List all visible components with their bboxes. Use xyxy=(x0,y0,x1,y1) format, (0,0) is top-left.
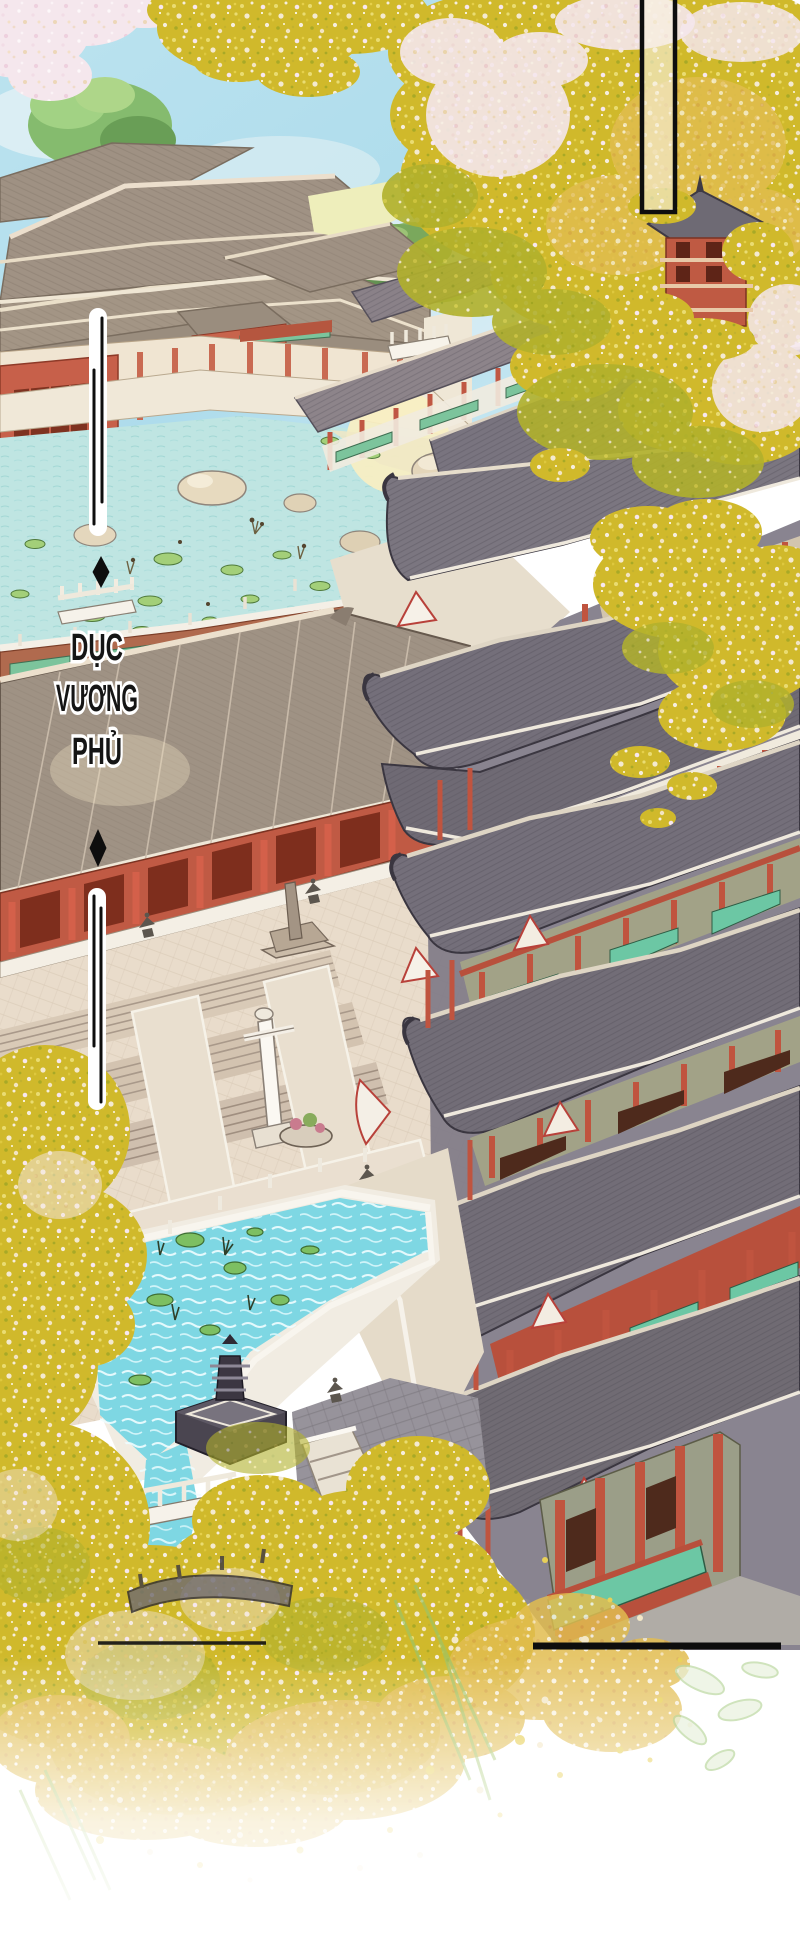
svg-text:DỤC: DỤC xyxy=(71,627,123,669)
svg-text:VƯƠNG: VƯƠNG xyxy=(56,678,138,720)
svg-text:PHỦ: PHỦ xyxy=(72,729,122,773)
